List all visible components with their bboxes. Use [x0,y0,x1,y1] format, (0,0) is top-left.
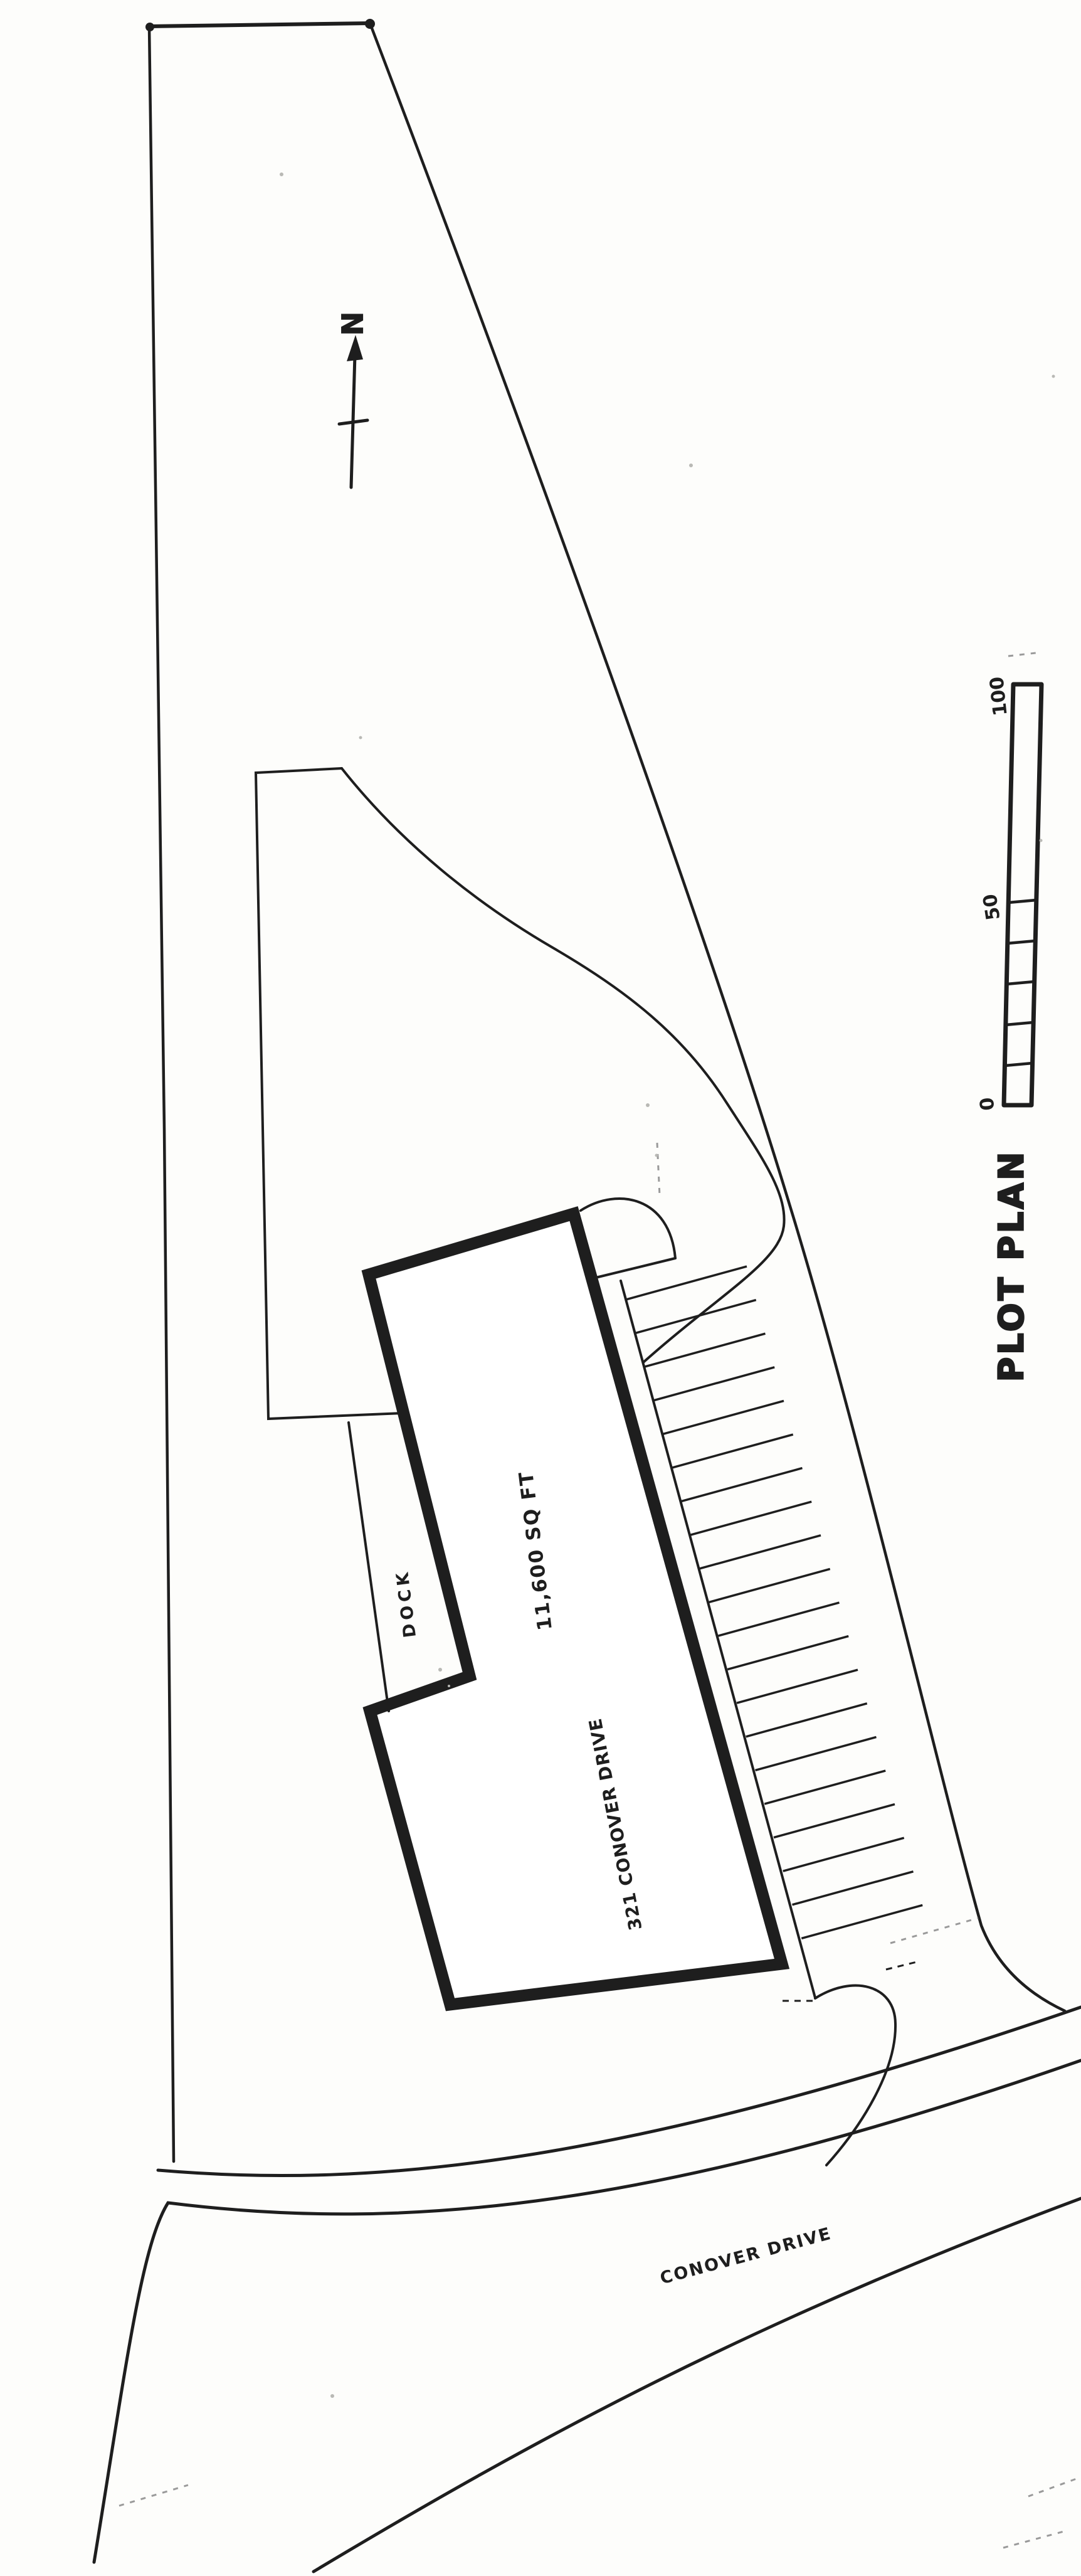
entrance-dashed-stub-2 [890,1918,978,1943]
parking-stall-line [756,1737,877,1770]
parking-stall-line [626,1266,747,1300]
parking-stall-line [727,1636,848,1670]
scale-label-100: 100 [986,676,1011,717]
dock-apron-outer-edge [349,1423,389,1711]
speck [280,172,283,176]
speck [330,2394,334,2398]
right-of-way-line [158,2007,1081,2176]
north-arrow: N [336,312,370,487]
road-edge-south [314,2198,1081,2572]
boundary-north-edge [149,23,370,26]
speck [646,1103,650,1107]
parking-stall-line [746,1704,867,1737]
parking-stall-line [774,1805,895,1838]
scale-label-0: 0 [976,1096,999,1111]
speck [448,1685,450,1687]
speck [655,1154,658,1157]
north-arrow-crossbar [339,420,367,424]
north-arrow-head-icon [347,335,363,361]
plot-plan-drawing: N 100 50 0 PLOT PLAN 11,600 SQ FT 321 CO… [0,0,1081,2576]
scale-bar-outline [1004,684,1041,1105]
speck [1040,839,1043,842]
parking-stall-line [653,1367,774,1401]
street-name-label: CONOVER DRIVE [658,2224,834,2289]
parking-stall-line [635,1300,756,1333]
scale-bar-top-dash [1008,653,1036,656]
building-outline [369,1214,782,2005]
scale-bar: 100 50 0 [976,653,1041,1111]
road-edge-north [94,2060,1081,2562]
scale-bar-divider [1005,1063,1032,1066]
speck [689,464,693,467]
parking-stall-line [793,1872,914,1905]
parking-stall-line [663,1401,784,1434]
dock-label: DOCK [393,1568,420,1639]
parking-stall-line [700,1535,821,1569]
scan-streak [119,2485,188,2506]
parking-stall-line [737,1670,858,1703]
scale-bar-divider [1006,1022,1033,1025]
scale-bar-divider [1006,982,1034,984]
road-conover-drive [94,2007,1081,2572]
parking-stall-line [690,1502,811,1535]
faint-dotted-mark [657,1143,660,1195]
parking-stall-line [682,1468,803,1502]
speck [1052,375,1055,378]
speck [359,736,362,739]
parking-stall-line [783,1838,904,1871]
entrance-dashed-stub-1 [886,1962,917,1969]
parking-stall-line [801,1905,922,1938]
scan-streak [1028,2478,1080,2496]
parking-stall-line [719,1603,840,1636]
scale-bar-divider [1008,941,1035,943]
scale-label-50: 50 [979,893,1005,922]
entrance-curb-curve [815,1986,895,2165]
turnaround-bulb-arc [581,1199,675,1258]
north-label: N [336,312,370,336]
boundary-west-edge [149,26,174,2161]
scale-bar-divider [1008,900,1036,903]
parking-stall-line [672,1434,793,1468]
speck [438,1668,442,1672]
parking-stall-line [764,1771,885,1804]
scan-streak [1003,2531,1066,2548]
drawing-title: PLOT PLAN [992,1150,1031,1382]
turnaround-bulb-chord [596,1258,675,1278]
parking-stall-line [709,1569,830,1602]
parking-stall-line [645,1333,766,1367]
plot-plan-sheet: N 100 50 0 PLOT PLAN 11,600 SQ FT 321 CO… [0,0,1081,2576]
